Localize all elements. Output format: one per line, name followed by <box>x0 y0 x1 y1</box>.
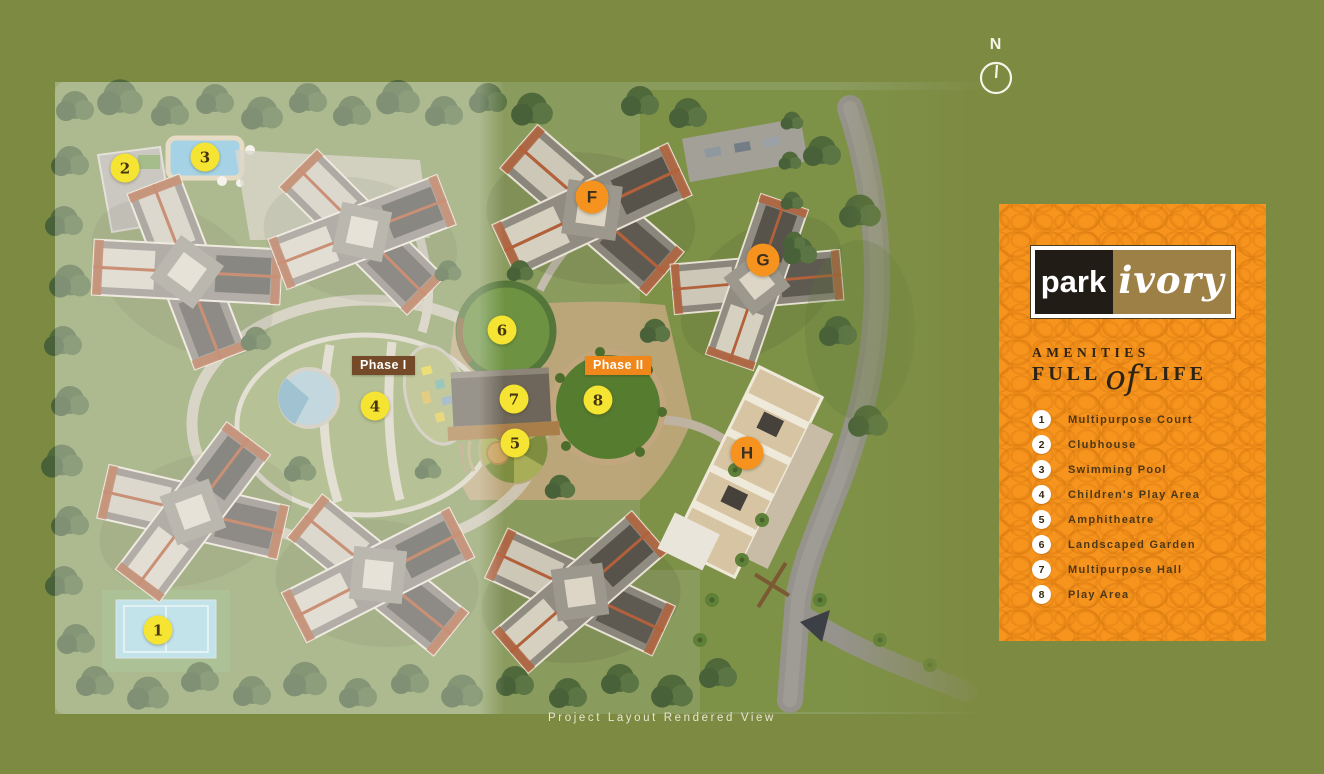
heading-amenities: AMENITIES <box>1032 345 1266 361</box>
poster-canvas: 12345678FGHPhase IPhase II N Project Lay… <box>0 0 1324 774</box>
amenities-list: 1Multipurpose Court2Clubhouse3Swimming P… <box>1032 410 1266 604</box>
amenity-label: Clubhouse <box>1068 439 1137 451</box>
amenity-number-badge: 1 <box>1032 410 1051 429</box>
amenity-row-1: 1Multipurpose Court <box>1032 410 1266 429</box>
amenity-label: Children's Play Area <box>1068 489 1200 501</box>
image-caption: Project Layout Rendered View <box>0 712 1324 724</box>
amenity-label: Swimming Pool <box>1068 464 1167 476</box>
amenity-row-6: 6Landscaped Garden <box>1032 535 1266 554</box>
amenity-row-3: 3Swimming Pool <box>1032 460 1266 479</box>
amenity-number-badge: 7 <box>1032 560 1051 579</box>
amenity-row-4: 4Children's Play Area <box>1032 485 1266 504</box>
park-ivory-logo: park ivory <box>1031 246 1235 318</box>
amenity-label: Play Area <box>1068 589 1129 601</box>
logo-left: park <box>1035 250 1113 314</box>
right-fade <box>840 82 990 714</box>
logo-right: ivory <box>1113 250 1231 314</box>
heading-full-of-life: FULL of LIFE <box>1032 363 1266 386</box>
amenity-label: Multipurpose Hall <box>1068 564 1182 576</box>
logo-text-ivory: ivory <box>1118 258 1224 302</box>
amenity-row-5: 5Amphitheatre <box>1032 510 1266 529</box>
heading-life: LIFE <box>1144 363 1207 386</box>
page: { "page": { "background": "#7d8a41", "ca… <box>0 0 1324 774</box>
panel-heading: AMENITIES FULL of LIFE <box>1032 345 1266 386</box>
amenities-panel: park ivory AMENITIES FULL of LIFE 1Multi… <box>999 204 1266 641</box>
north-compass: N <box>975 36 1017 101</box>
amenity-number-badge: 4 <box>1032 485 1051 504</box>
amenity-row-8: 8Play Area <box>1032 585 1266 604</box>
amenity-label: Landscaped Garden <box>1068 539 1196 551</box>
phase1-haze-overlay <box>55 82 479 714</box>
amenity-number-badge: 6 <box>1032 535 1051 554</box>
amenity-label: Multipurpose Court <box>1068 414 1193 426</box>
amenity-row-2: 2Clubhouse <box>1032 435 1266 454</box>
compass-icon <box>975 54 1017 96</box>
amenity-number-badge: 3 <box>1032 460 1051 479</box>
heading-full: FULL <box>1032 363 1101 386</box>
amenity-row-7: 7Multipurpose Hall <box>1032 560 1266 579</box>
amenity-number-badge: 2 <box>1032 435 1051 454</box>
logo-text-park: park <box>1041 264 1106 300</box>
heading-of: of <box>1105 368 1138 388</box>
amenity-number-badge: 5 <box>1032 510 1051 529</box>
north-label: N <box>975 36 1017 54</box>
amenity-number-badge: 8 <box>1032 585 1051 604</box>
amenity-label: Amphitheatre <box>1068 514 1155 526</box>
